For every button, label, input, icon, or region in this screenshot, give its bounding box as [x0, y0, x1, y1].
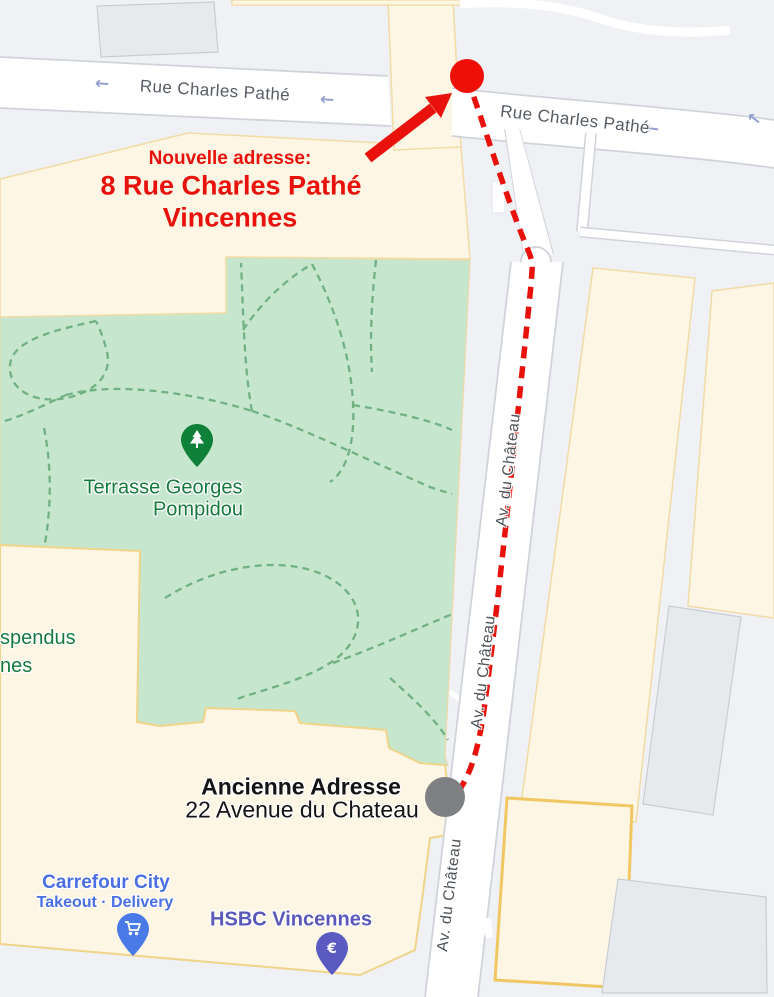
building-top-edge-strip: [232, 0, 465, 5]
one-way-arrow-icon: ←: [94, 74, 109, 95]
park-label-line2[interactable]: Pompidou: [153, 499, 243, 522]
new-address-marker: [450, 59, 484, 93]
building-gray-bottom-right: [602, 879, 767, 993]
partial-poi-label-line2: nes: [0, 655, 32, 678]
new-address-line1: 8 Rue Charles Pathé: [100, 171, 361, 202]
partial-poi-label-line1: spendus: [0, 627, 76, 650]
building-gray-topleft: [97, 2, 218, 57]
park-label-line1[interactable]: Terrasse Georges: [84, 477, 243, 500]
one-way-arrow-icon: ←: [319, 90, 334, 111]
euro-icon: €: [326, 941, 337, 957]
old-address-marker: [425, 777, 465, 817]
carrefour-subtitle: Takeout · Delivery: [37, 894, 174, 912]
carrefour-label[interactable]: Carrefour City: [42, 872, 170, 894]
new-address-label: Nouvelle adresse:: [149, 148, 312, 170]
hsbc-label[interactable]: HSBC Vincennes: [210, 909, 372, 932]
old-address-line2: 22 Avenue du Chateau: [185, 797, 419, 824]
new-address-line2: Vincennes: [163, 203, 298, 234]
building-white-small: [492, 181, 505, 213]
map-screenshot: Rue Charles Pathé ← ← Rue Charles Pathé …: [0, 0, 774, 997]
